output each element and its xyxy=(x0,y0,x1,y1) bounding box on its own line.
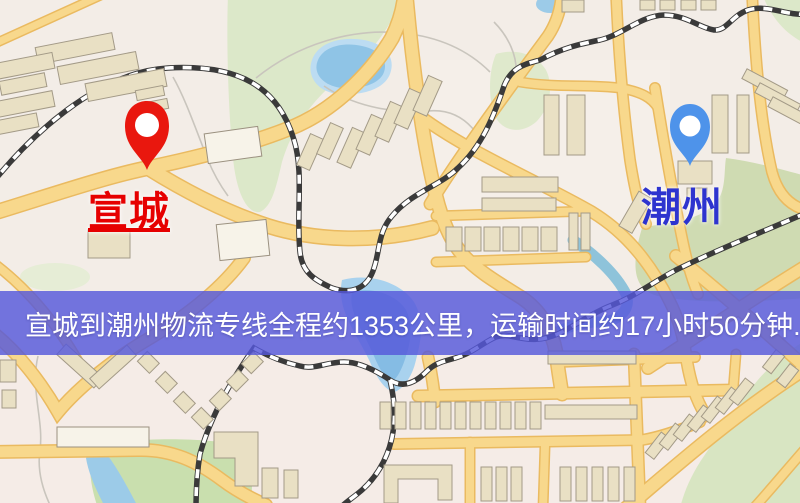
route-info-text: 宣城到潮州物流专线全程约1353公里，运输时间约17小时50分钟. xyxy=(0,304,800,343)
map-canvas[interactable]: 宣城 潮州 宣城到潮州物流专线全程约1353公里，运输时间约17小时50分钟. xyxy=(0,0,800,503)
destination-label: 潮州 xyxy=(641,175,723,233)
route-info-banner: 宣城到潮州物流专线全程约1353公里，运输时间约17小时50分钟. xyxy=(0,291,800,355)
destination-pin-icon[interactable] xyxy=(663,100,717,170)
origin-pin-icon[interactable] xyxy=(117,96,177,174)
map-base xyxy=(0,0,800,503)
origin-label: 宣城 xyxy=(88,179,170,237)
